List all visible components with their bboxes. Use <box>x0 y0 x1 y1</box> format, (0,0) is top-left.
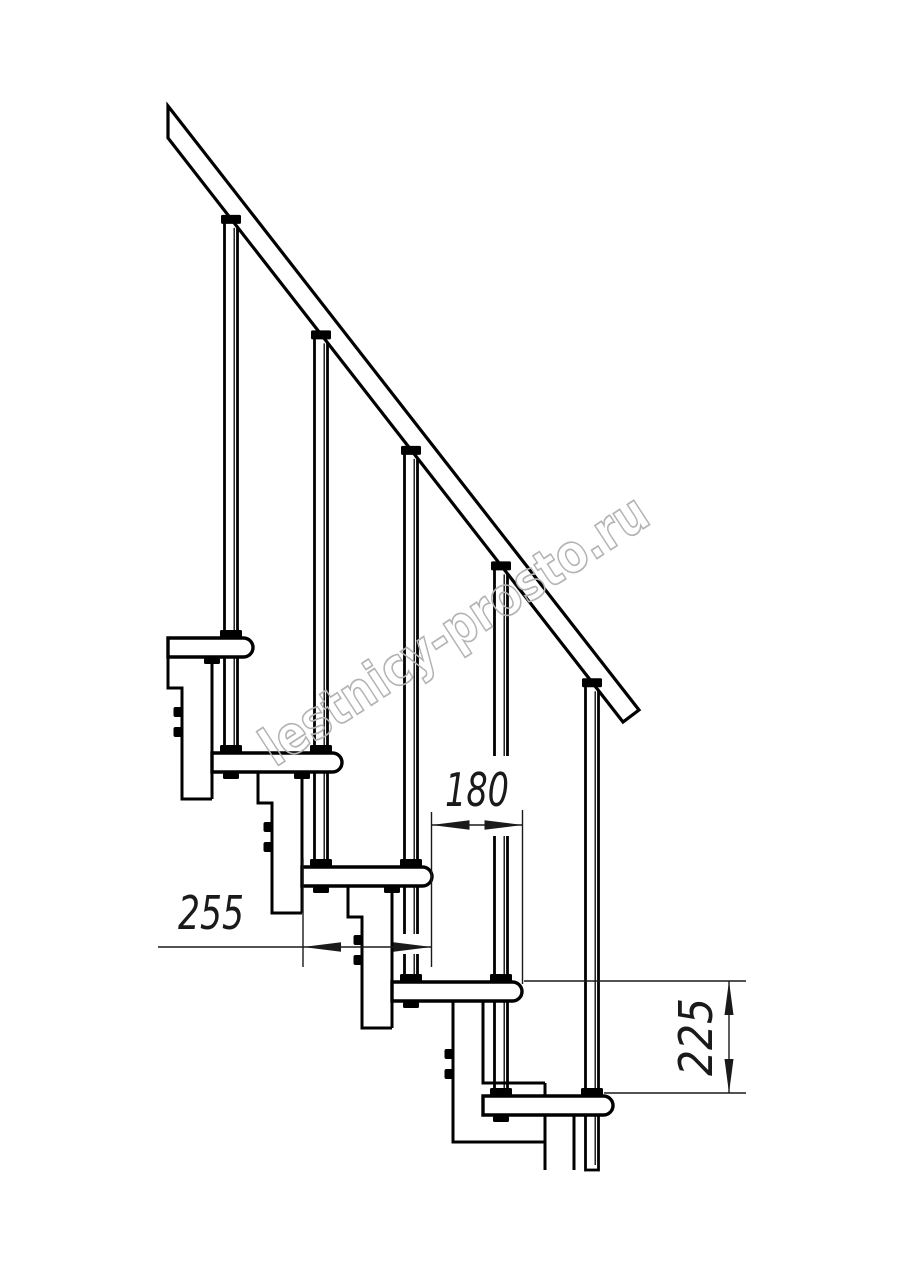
tread-3 <box>302 867 432 886</box>
dimension-label-tread-depth: 255 <box>178 886 244 940</box>
bolt <box>174 707 183 717</box>
bolt <box>354 935 363 945</box>
fixing-nub <box>223 773 239 779</box>
dimension-label-step-height: 225 <box>669 998 723 1076</box>
dimension-label-step-run: 180 <box>445 763 509 817</box>
bolt <box>174 727 183 737</box>
collar-rail <box>311 330 331 339</box>
collar-tread-base <box>220 630 242 638</box>
bolt <box>264 822 273 832</box>
dimension-arrowhead <box>725 981 734 1015</box>
collar-tread-base <box>400 859 422 867</box>
baluster-post-1 <box>225 219 238 753</box>
bolt <box>354 955 363 965</box>
collar-rail <box>221 215 241 224</box>
fixing-nub <box>493 1116 509 1122</box>
staircase-side-view-drawing: lestnicy-prosto.ru 180 255 225 <box>0 0 914 1280</box>
collar-post-landing <box>220 745 242 753</box>
bolt <box>264 842 273 852</box>
dimension-labels: 180 255 225 <box>178 763 723 1076</box>
drawing-canvas: lestnicy-prosto.ru 180 255 225 <box>0 0 914 1280</box>
dimension-arrowhead <box>303 942 341 952</box>
collar-tread-base <box>490 974 512 982</box>
fixing-nub <box>313 887 329 893</box>
collar-rail <box>401 446 421 455</box>
collar-rail <box>582 678 602 687</box>
collar-post-landing <box>490 1088 512 1096</box>
baluster-post-3 <box>405 450 418 982</box>
tread-4 <box>392 982 522 1001</box>
bolt <box>445 1049 454 1059</box>
collar-post-landing <box>400 974 422 982</box>
baluster-post-2 <box>315 334 328 867</box>
fixing-nub <box>384 887 400 893</box>
dimension-arrowhead <box>725 1059 734 1093</box>
fixing-nub <box>294 773 310 779</box>
fixing-nub <box>403 1002 419 1008</box>
collar-tread-base <box>581 1088 603 1096</box>
tread-5 <box>483 1096 613 1115</box>
bolt <box>445 1069 454 1079</box>
tread-1 <box>168 638 253 657</box>
fixing-nub <box>204 658 220 664</box>
collar-post-landing <box>310 859 332 867</box>
